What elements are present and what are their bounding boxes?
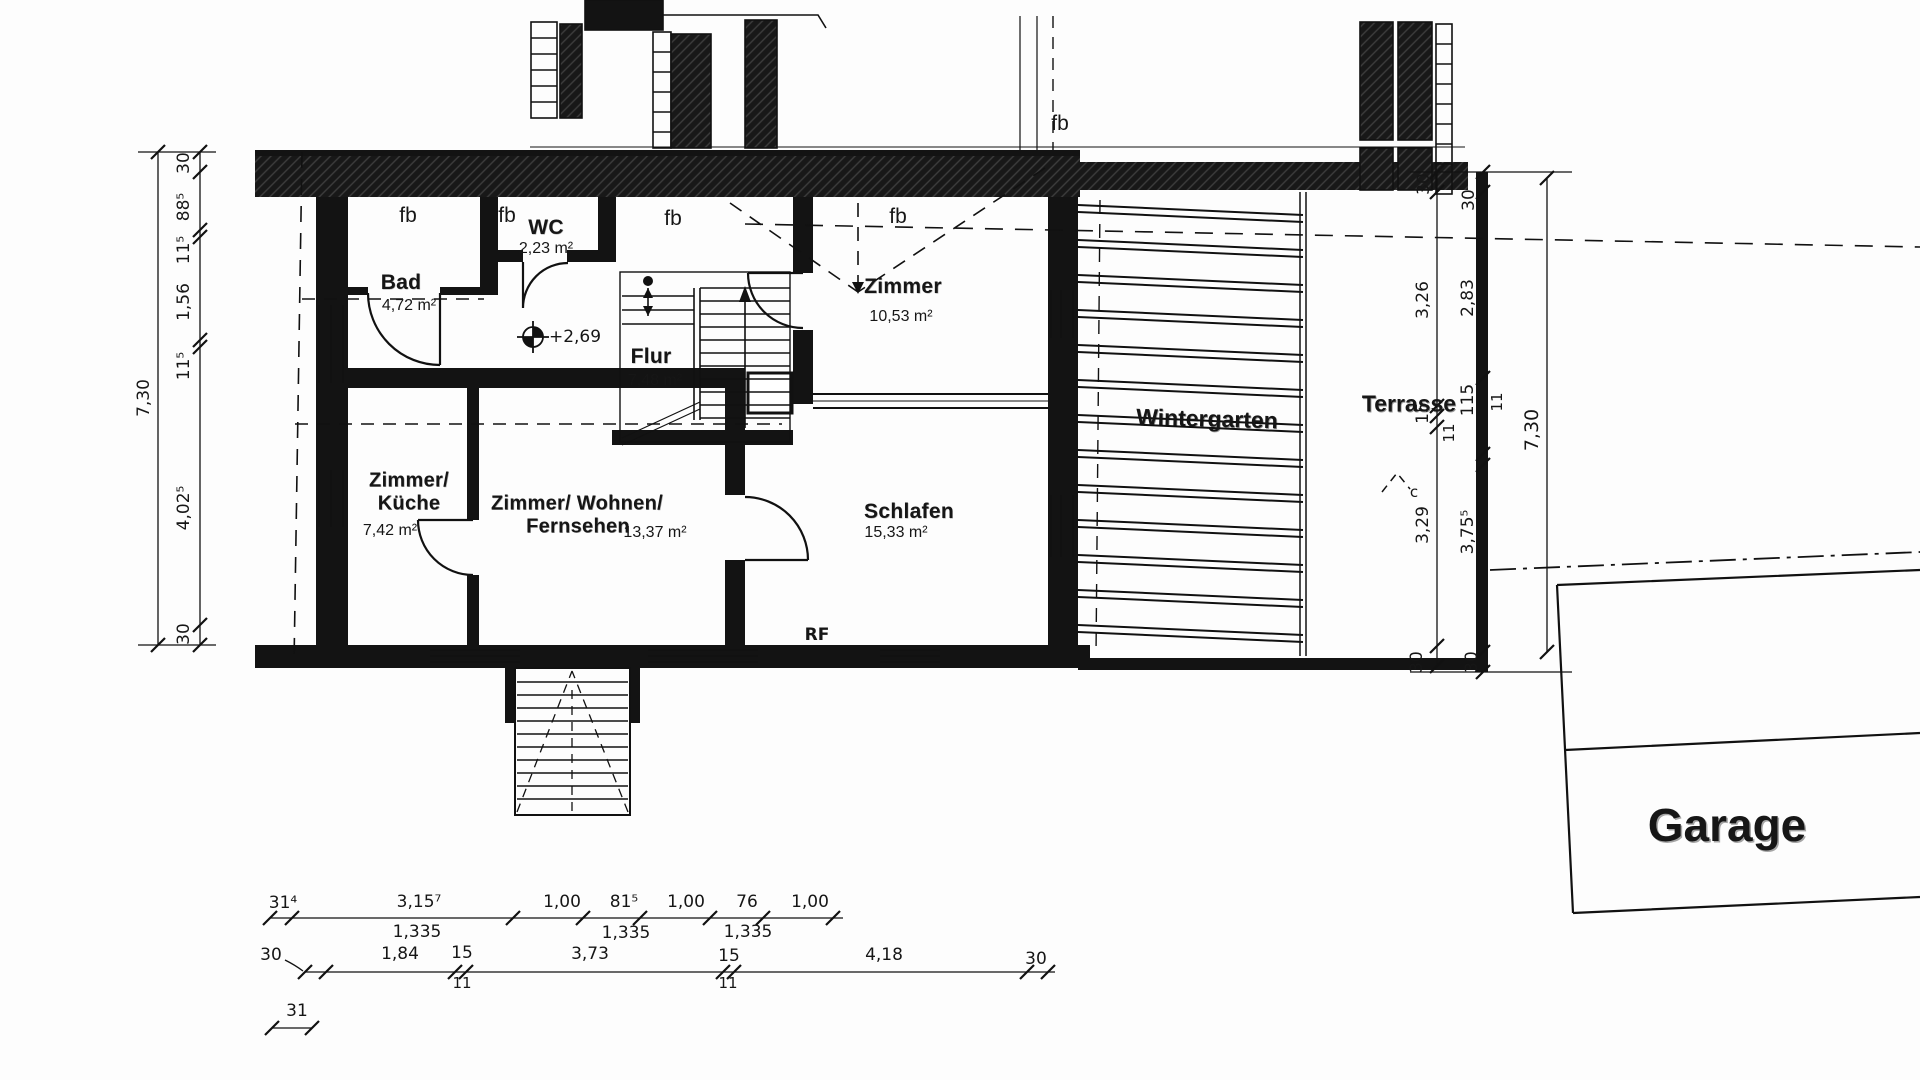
dim-bottom-a-4: 1,00 [667,892,705,912]
dim-right-inner-5: 30 [1407,651,1427,673]
dim-sill-1: 1,335 [602,923,651,943]
room-area-schlafen: 15,33 m² [864,524,927,542]
dim-bottom-b-1: 1,84 [381,944,419,964]
rf-annotation: RF [805,625,830,645]
dim-bottom-b-5: 4,18 [865,945,903,965]
room-label-kueche-1: Zimmer/ [369,470,449,493]
level-marker-icon [517,321,549,353]
room-label-wc: WC [528,216,564,240]
dim-left-5: 4,02⁵ [174,486,194,531]
dim-bottom-sub-0: 11 [452,974,471,992]
dim-bottom-a-3: 81⁵ [610,892,638,912]
dim-bottom-a-5: 76 [736,892,758,912]
room-label-wohnen-2: Fernsehen [526,516,630,539]
dim-bottom-a-6: 1,00 [791,892,829,912]
room-label-zimmer: Zimmer [864,275,942,299]
room-label-flur: Flur [631,345,672,369]
room-area-kueche: 7,42 m² [363,522,417,540]
room-area-bad: 4,72 m² [382,297,436,315]
floor-plan-drawing [0,0,1920,1080]
fb-annotation: fb [664,207,682,231]
dim-left-1: 88⁵ [174,193,194,221]
room-label-terrasse: Terrasse [1362,391,1456,418]
c-annotation: c [1410,483,1418,501]
room-area-wohnen: 13,37 m² [623,524,686,542]
room-area-wc: 2,23 m² [519,240,573,258]
room-label-wohnen-1: Zimmer/ Wohnen/ [491,493,663,516]
dim-sill-2: 1,335 [724,922,773,942]
dim-right-inner-2: 15 [1413,402,1433,424]
dim-right-mid-2: 115 [1458,384,1478,416]
room-area-zimmer: 10,53 m² [869,308,932,326]
dim-right-inner-0: 30 [1414,173,1434,195]
floor-plan: fb fb fb fb fb Bad 4,72 m² WC 2,23 m² +2… [0,0,1920,1080]
dim-bottom-b-6: 30 [1025,949,1047,969]
room-label-kueche-2: Küche [378,493,441,516]
dim-bottom-b-3: 3,73 [571,944,609,964]
dim-right-mid-3: 11 [1488,392,1506,411]
dim-bottom-a-1: 3,15⁷ [397,892,442,912]
fb-annotation: fb [889,205,907,229]
dim-left-0: 30 [174,152,194,174]
room-label-bad: Bad [381,271,422,295]
level-mark: +2,69 [549,327,601,347]
dim-right-total: 7,30 [1521,409,1543,451]
dim-right-mid-1: 2,83 [1458,279,1478,317]
dim-sill-0: 1,335 [393,922,442,942]
walls [255,150,1488,723]
exterior-stair [515,668,630,815]
dim-right-inner-3: 11 [1440,423,1458,442]
dim-bottom-b-0: 30 [260,945,282,965]
dim-left-6: 30 [174,623,194,645]
fb-annotation: fb [1051,112,1069,136]
dim-bottom-a-2: 1,00 [543,892,581,912]
dim-right-mid-5: 30 [1462,651,1482,673]
dim-bottom-a-0: 31⁴ [269,893,297,913]
dim-left-4: 11⁵ [174,352,194,380]
room-label-wintergarten: Wintergarten [1136,404,1278,435]
dimension-ticks [151,145,1554,1035]
room-area-flur: 7,48 m² [628,372,682,390]
room-label-garage: Garage [1648,798,1807,852]
dim-left-2: 11⁵ [174,236,194,264]
dim-bottom-sub-1: 11 [718,974,737,992]
dim-right-mid-4: 3,75⁵ [1458,510,1478,555]
room-label-schlafen: Schlafen [864,500,954,524]
fb-annotation: fb [498,204,516,228]
dim-right-inner-4: 3,29 [1413,506,1433,544]
fb-annotation: fb [399,204,417,228]
dim-left-3: 1,56 [174,283,194,321]
dim-bottom-offset: 31 [286,1001,308,1021]
dim-bottom-b-2: 15 [451,943,473,963]
dim-right-mid-0: 30 [1459,189,1479,211]
c-bracket [1382,473,1410,492]
dim-left-total: 7,30 [134,379,154,417]
dim-right-inner-1: 3,26 [1413,281,1433,319]
dim-bottom-b-4: 15 [718,946,740,966]
garage-outline [1557,570,1920,913]
